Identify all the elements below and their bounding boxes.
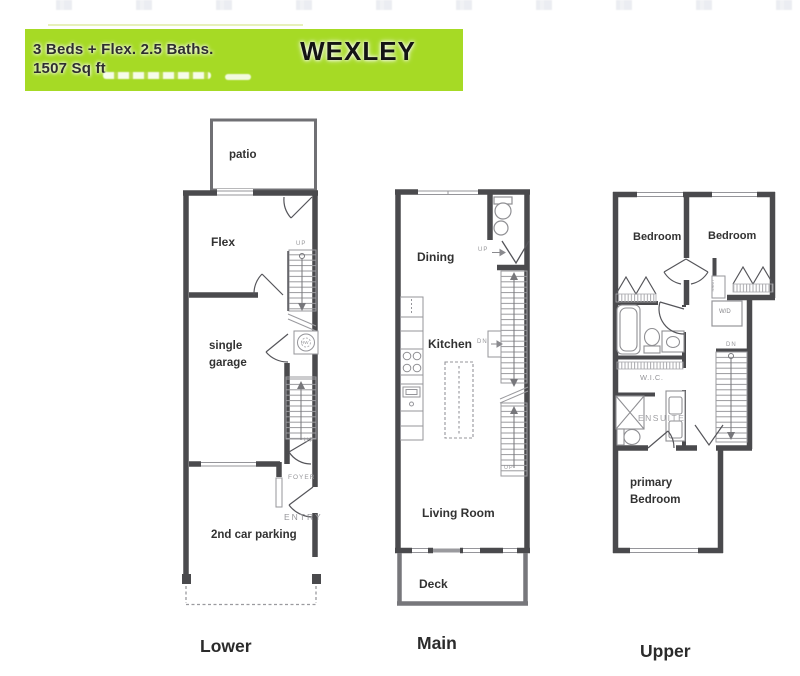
sink-icon: [494, 221, 508, 235]
specs-line1: 3 Beds + Flex. 2.5 Baths.: [33, 41, 214, 58]
room-label-wic: W.I.C.: [640, 373, 663, 382]
washer-dryer-label: W/D: [719, 309, 731, 315]
stairs-up-label: UP: [478, 247, 488, 253]
redacted-text-artifact: [225, 74, 251, 80]
stairs-icon: [286, 377, 316, 440]
room-label-foyer: FOYER: [288, 474, 315, 481]
toilet-icon: [494, 197, 512, 219]
scan-artifact-row: [0, 0, 800, 10]
room-label-primary: primary Bedroom: [630, 475, 680, 508]
room-label-bedroom2: Bedroom: [708, 229, 756, 245]
floor-name-main: Main: [417, 633, 457, 654]
room-label-dining: Dining: [417, 249, 454, 266]
wall-post: [312, 574, 321, 584]
floor-plan-main: [385, 180, 540, 615]
room-label-bedroom1: Bedroom: [633, 230, 681, 246]
room-label-flex: Flex: [211, 234, 235, 251]
scan-artifact-line: [48, 24, 303, 26]
garage-door: [201, 461, 256, 467]
stairs-dn-label: DN: [726, 342, 737, 348]
room-label-deck: Deck: [419, 576, 448, 593]
room-label-patio: patio: [229, 147, 256, 164]
toilet-icon: [617, 429, 640, 445]
water-heater-label: HW: [301, 340, 309, 345]
stairs-up-label: UP: [504, 465, 514, 471]
window: [418, 189, 478, 196]
room-label-ensuite: ENSUITE: [638, 413, 685, 423]
redacted-text-artifact: [103, 72, 211, 79]
stairs-icon: [488, 271, 528, 476]
floor-name-upper: Upper: [640, 641, 691, 662]
floor-name-lower: Lower: [200, 636, 252, 657]
room-label-kitchen: Kitchen: [428, 336, 472, 353]
bathtub-icon: [617, 305, 640, 354]
patio-outline: [212, 120, 316, 190]
toilet-icon: [644, 329, 660, 354]
room-label-garage: single garage: [209, 338, 247, 371]
floor-plan-upper: [600, 185, 790, 565]
stairs-up-label: UP: [296, 241, 306, 247]
stairs-dn-label: DN: [477, 339, 488, 345]
kitchen-island: [445, 362, 473, 438]
floorplan-sheet: 3 Beds + Flex. 2.5 Baths. 1507 Sq ft WEX…: [0, 0, 800, 676]
closet-rod: [617, 362, 683, 369]
room-label-parking: 2nd car parking: [211, 527, 297, 544]
stairs-up-label: UP: [304, 438, 314, 444]
parking-stall-dashed: [186, 586, 316, 605]
linen-label: LINEN: [710, 280, 715, 292]
window: [217, 189, 253, 196]
room-label-living: Living Room: [422, 505, 495, 522]
specs-line2: 1507 Sq ft: [33, 60, 106, 77]
deck-outline: [397, 553, 528, 604]
interior-door-slab: [276, 478, 282, 507]
room-label-entry: ENTRY: [284, 512, 323, 522]
window: [630, 548, 698, 554]
kitchen-counter: [401, 297, 424, 440]
plan-title: WEXLEY: [283, 36, 433, 67]
wall-post: [182, 574, 191, 584]
stairs-icon: [288, 250, 316, 331]
